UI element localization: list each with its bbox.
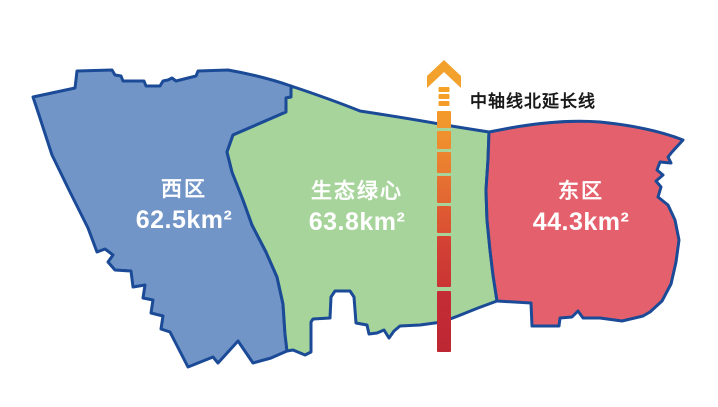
- region-east-shape: [486, 121, 683, 326]
- infographic-map: 中轴线北延长线 西区 62.5km² 生态绿心 63.8km² 东区 44.3k…: [0, 0, 718, 407]
- district-map-canvas: [0, 0, 718, 407]
